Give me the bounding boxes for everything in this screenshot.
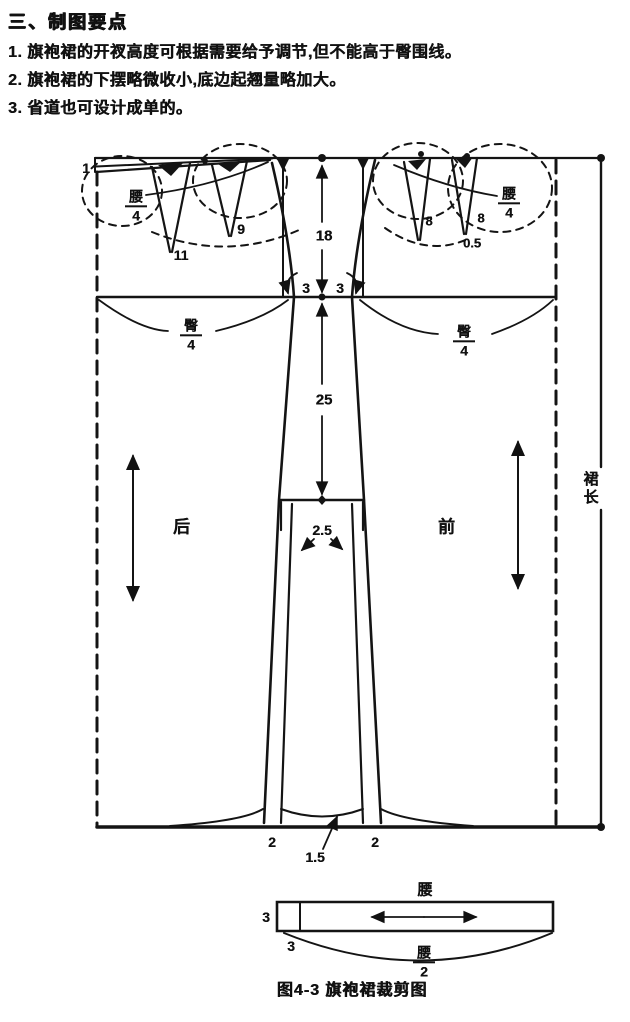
figure-caption: 图4-3 旗袍裙裁剪图 [277,976,428,1000]
dashed-ellipse [82,156,162,226]
fraction-numerator: 臀 [453,324,475,342]
hem-rise-curve-right [381,809,473,826]
fraction-numerator: 腰 [498,186,520,204]
dart-top-dot [418,151,424,157]
hem-rise-curve-left [170,809,263,826]
skirt-length-label: 裙长 [583,471,598,507]
hem-lines [170,809,473,849]
dashed-arc [385,228,470,246]
dart-leg [172,163,190,252]
hip-ease-right-label: 3 [336,281,344,295]
hem-rise-label: 1.5 [305,850,324,864]
front-dart2-length-label: 8 [477,212,484,225]
bracket-arc [492,300,553,334]
back-dart2-length-label: 9 [237,222,245,236]
slit-lap-label: 2.5 [312,523,331,537]
waistband-width-label: 3 [262,910,270,924]
point-dot [318,154,326,162]
bracket-arc [216,300,288,331]
hem-rise-arrow [323,817,337,849]
slit-facing-left [281,504,292,823]
front-waist-quarter-label: 腰 4 [498,186,520,219]
dart-top-dot [202,158,208,164]
point-dot [597,823,605,831]
front-hip-quarter-label: 臀 4 [453,324,475,357]
dart-intake-triangle [408,159,426,170]
back-piece-label: 后 [173,519,191,536]
front-piece-label: 前 [438,519,456,536]
scanned-book-page: 三、制图要点 1. 旗袍裙的开衩高度可根据需要给予调节,但不能高于臀围线。 2.… [0,0,630,1022]
point-dot [597,154,605,162]
seam-intake-triangle [277,159,289,171]
front-piece-lines [352,158,497,823]
waistband-waist-label: 腰 [417,883,432,898]
fraction-denominator: 4 [505,204,513,220]
hem-curve-center [281,809,363,817]
fraction-numerator: 腰 [125,189,147,207]
waistband-length-label: 腰 2 [413,945,435,978]
back-dart1-length-label: 11 [174,248,189,262]
slit-lines [280,500,364,823]
back-hip-quarter-label: 臀 4 [180,318,202,351]
slit-lap-arrow-left [302,539,314,550]
cb-drop-label: 1 [82,161,90,175]
cutting-diagram [0,0,630,1022]
point-marks [158,151,605,831]
fraction-denominator: 4 [132,207,140,223]
hip-quarter-brackets [99,300,553,334]
hip-ease-left-label: 3 [302,281,310,295]
seam-intake-triangle [357,158,369,170]
waist-to-hip-dimension-label: 18 [316,229,333,244]
slit-facing-right [352,504,363,823]
hem-inset-right-label: 2 [371,835,379,849]
dart-leg [152,167,170,252]
slit-point-diamond [318,495,327,505]
back-piece-lines [96,159,294,824]
slit-lap-arrow-right [331,539,342,549]
fraction-denominator: 4 [460,342,468,358]
construction-frame [95,158,601,827]
point-dot [319,294,326,301]
hem-inset-left-label: 2 [268,835,276,849]
fraction-denominator: 4 [187,336,195,352]
front-dart-offset-label: 0.5 [463,237,481,250]
waistband-extension-label: 3 [287,939,295,953]
fraction-numerator: 臀 [180,318,202,336]
back-waist-quarter-label: 腰 4 [125,189,147,222]
dashed-ellipse [193,144,287,218]
side-seam-front-lower [352,297,381,823]
fraction-numerator: 腰 [413,945,435,963]
dart-leg [212,165,229,236]
bracket-arc [99,300,168,331]
hip-to-slit-dimension-label: 25 [316,393,333,408]
bracket-arc [360,300,438,334]
front-dart1-length-label: 8 [425,215,432,228]
